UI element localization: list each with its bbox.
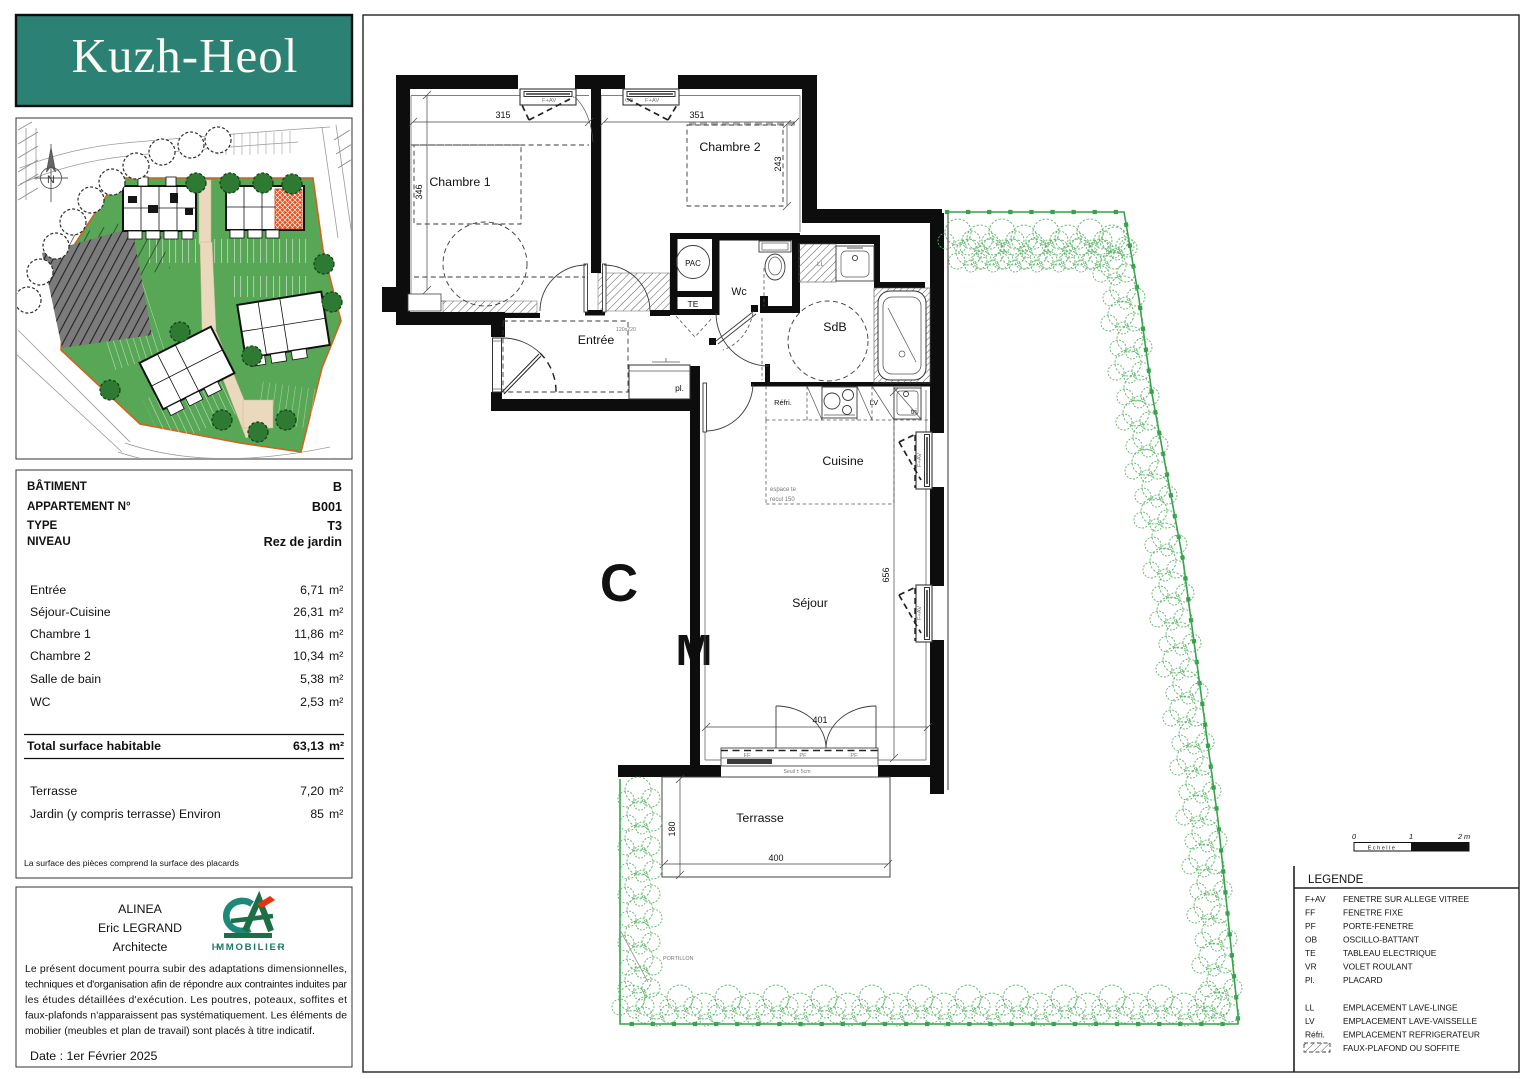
svg-text:7,20: 7,20	[300, 784, 324, 798]
svg-text:Rez de jardin: Rez de jardin	[264, 535, 342, 549]
svg-text:C: C	[600, 554, 638, 613]
svg-text:2 m: 2 m	[1457, 832, 1470, 841]
svg-text:Date : 1er Février 2025: Date : 1er Février 2025	[30, 1049, 158, 1063]
svg-text:315: 315	[495, 110, 510, 120]
svg-text:Jardin (y compris terrasse) En: Jardin (y compris terrasse) Environ	[30, 807, 221, 821]
svg-text:m²: m²	[329, 739, 344, 753]
svg-text:IMMOBILIER: IMMOBILIER	[212, 942, 287, 953]
svg-text:EMPLACEMENT LAVE-LINGE: EMPLACEMENT LAVE-LINGE	[1343, 1003, 1458, 1013]
svg-text:Terrasse: Terrasse	[736, 811, 784, 825]
svg-text:Seuil ± 5cm: Seuil ± 5cm	[783, 769, 810, 775]
svg-text:NIVEAU: NIVEAU	[27, 535, 71, 548]
svg-text:Réfri.: Réfri.	[774, 398, 792, 407]
svg-text:faux-plafonds n'apparaissent p: faux-plafonds n'apparaissent pas systéma…	[25, 1011, 347, 1022]
svg-text:m²: m²	[329, 807, 343, 821]
svg-text:656: 656	[881, 567, 891, 582]
svg-text:11,86: 11,86	[294, 627, 324, 641]
svg-text:OB: OB	[1305, 935, 1318, 945]
svg-text:401: 401	[812, 715, 827, 725]
svg-text:Kuzh‑Heol: Kuzh‑Heol	[72, 28, 299, 83]
svg-text:180: 180	[667, 821, 677, 836]
svg-text:Total surface habitable: Total surface habitable	[27, 739, 161, 753]
svg-text:espace te: espace te	[770, 487, 797, 493]
svg-text:10,34: 10,34	[293, 649, 324, 663]
svg-text:B: B	[333, 480, 342, 494]
svg-text:PLACARD: PLACARD	[1343, 975, 1383, 985]
svg-text:m²: m²	[329, 672, 343, 686]
svg-text:La surface des pièces comprend: La surface des pièces comprend la surfac…	[24, 858, 239, 868]
svg-text:5,38: 5,38	[300, 672, 324, 686]
svg-text:les études détaillées d'exécut: les études détaillées d'exécution. Les p…	[25, 995, 347, 1006]
svg-text:m²: m²	[329, 784, 343, 798]
svg-text:400: 400	[768, 853, 783, 863]
svg-text:Cuisine: Cuisine	[822, 454, 863, 468]
svg-text:Pl.: Pl.	[1305, 975, 1315, 985]
svg-text:techniques et d'organisation a: techniques et d'organisation afin de rép…	[25, 980, 348, 991]
svg-text:F+AV: F+AV	[917, 453, 923, 467]
svg-text:Le présent document pourra sub: Le présent document pourra subir des ada…	[25, 964, 347, 975]
svg-text:pl.: pl.	[675, 383, 684, 393]
svg-text:m²: m²	[329, 649, 343, 663]
svg-text:FENETRE FIXE: FENETRE FIXE	[1343, 908, 1403, 918]
svg-text:LL: LL	[817, 261, 825, 268]
svg-text:LEGENDE: LEGENDE	[1308, 873, 1364, 886]
svg-text:Séjour: Séjour	[792, 596, 828, 610]
svg-text:WC: WC	[30, 695, 51, 709]
svg-text:APPARTEMENT N°: APPARTEMENT N°	[27, 500, 131, 513]
svg-text:Réfri.: Réfri.	[1305, 1030, 1325, 1040]
svg-text:FF: FF	[744, 753, 751, 759]
svg-text:m²: m²	[329, 605, 343, 619]
svg-text:Eric LEGRAND: Eric LEGRAND	[98, 921, 182, 935]
svg-text:Chambre 2: Chambre 2	[699, 140, 760, 154]
svg-text:26,31: 26,31	[293, 605, 324, 619]
svg-text:Séjour-Cuisine: Séjour-Cuisine	[30, 605, 111, 619]
svg-text:346: 346	[414, 184, 424, 199]
svg-text:OB: OB	[625, 98, 634, 104]
svg-text:Chambre 2: Chambre 2	[30, 649, 91, 663]
svg-text:m²: m²	[329, 627, 343, 641]
svg-text:Entrée: Entrée	[30, 583, 66, 597]
svg-text:PF: PF	[1305, 921, 1316, 931]
svg-text:OSCILLO-BATTANT: OSCILLO-BATTANT	[1343, 935, 1419, 945]
svg-text:2,53: 2,53	[300, 695, 324, 709]
svg-text:VR: VR	[1305, 962, 1317, 972]
svg-text:tri: tri	[911, 409, 917, 416]
svg-text:m²: m²	[329, 695, 343, 709]
svg-text:recul 150: recul 150	[770, 497, 795, 503]
svg-text:F+AV: F+AV	[542, 98, 556, 104]
svg-text:1: 1	[1409, 832, 1413, 841]
svg-text:PF: PF	[799, 753, 807, 759]
svg-text:FENETRE SUR ALLEGE VITREE: FENETRE SUR ALLEGE VITREE	[1343, 894, 1470, 904]
svg-text:Terrasse: Terrasse	[30, 784, 77, 798]
svg-text:F+AV: F+AV	[1305, 894, 1326, 904]
svg-text:PAC: PAC	[685, 259, 701, 268]
svg-text:TYPE: TYPE	[27, 519, 58, 532]
svg-text:6,71: 6,71	[300, 583, 324, 597]
svg-text:FAUX-PLAFOND OU SOFFITE: FAUX-PLAFOND OU SOFFITE	[1343, 1043, 1460, 1053]
svg-text:TE: TE	[1305, 948, 1316, 958]
svg-text:ALINEA: ALINEA	[118, 902, 163, 916]
svg-text:LV: LV	[870, 398, 879, 407]
svg-text:SdB: SdB	[823, 320, 846, 334]
svg-text:Chambre 1: Chambre 1	[30, 627, 91, 641]
svg-text:LL: LL	[1305, 1003, 1315, 1013]
svg-text:85: 85	[310, 807, 324, 821]
svg-text:Wc: Wc	[731, 286, 747, 298]
svg-text:120x220: 120x220	[616, 327, 636, 333]
svg-text:PORTILLON: PORTILLON	[663, 956, 694, 962]
svg-text:Entrée: Entrée	[578, 333, 615, 347]
svg-text:Architecte: Architecte	[113, 940, 168, 954]
svg-text:FF: FF	[1305, 908, 1315, 918]
svg-text:351: 351	[689, 110, 704, 120]
svg-text:63,13: 63,13	[293, 739, 324, 753]
svg-text:EMPLACEMENT REFRIGERATEUR: EMPLACEMENT REFRIGERATEUR	[1343, 1030, 1480, 1040]
svg-text:BÂTIMENT: BÂTIMENT	[27, 480, 87, 493]
svg-text:TE: TE	[688, 299, 699, 309]
svg-text:PORTE-FENETRE: PORTE-FENETRE	[1343, 921, 1414, 931]
svg-text:Echelle: Echelle	[1368, 846, 1397, 852]
svg-text:B001: B001	[312, 500, 342, 514]
svg-text:EMPLACEMENT LAVE-VAISSELLE: EMPLACEMENT LAVE-VAISSELLE	[1343, 1016, 1477, 1026]
svg-text:T3: T3	[327, 519, 342, 533]
svg-text:mobilier (meubles et plan de t: mobilier (meubles et plan de travail) so…	[25, 1026, 315, 1037]
svg-text:F+AV: F+AV	[917, 606, 923, 620]
svg-text:VOLET ROULANT: VOLET ROULANT	[1343, 962, 1413, 972]
svg-text:243: 243	[773, 156, 783, 171]
svg-text:F+AV: F+AV	[645, 98, 659, 104]
svg-text:Salle de bain: Salle de bain	[30, 672, 101, 686]
svg-text:Chambre 1: Chambre 1	[429, 175, 490, 189]
svg-text:TABLEAU ELECTRIQUE: TABLEAU ELECTRIQUE	[1343, 948, 1437, 958]
svg-text:m²: m²	[329, 583, 343, 597]
svg-text:PF: PF	[850, 753, 858, 759]
svg-text:N: N	[47, 174, 55, 186]
svg-text:LV: LV	[1305, 1016, 1315, 1026]
